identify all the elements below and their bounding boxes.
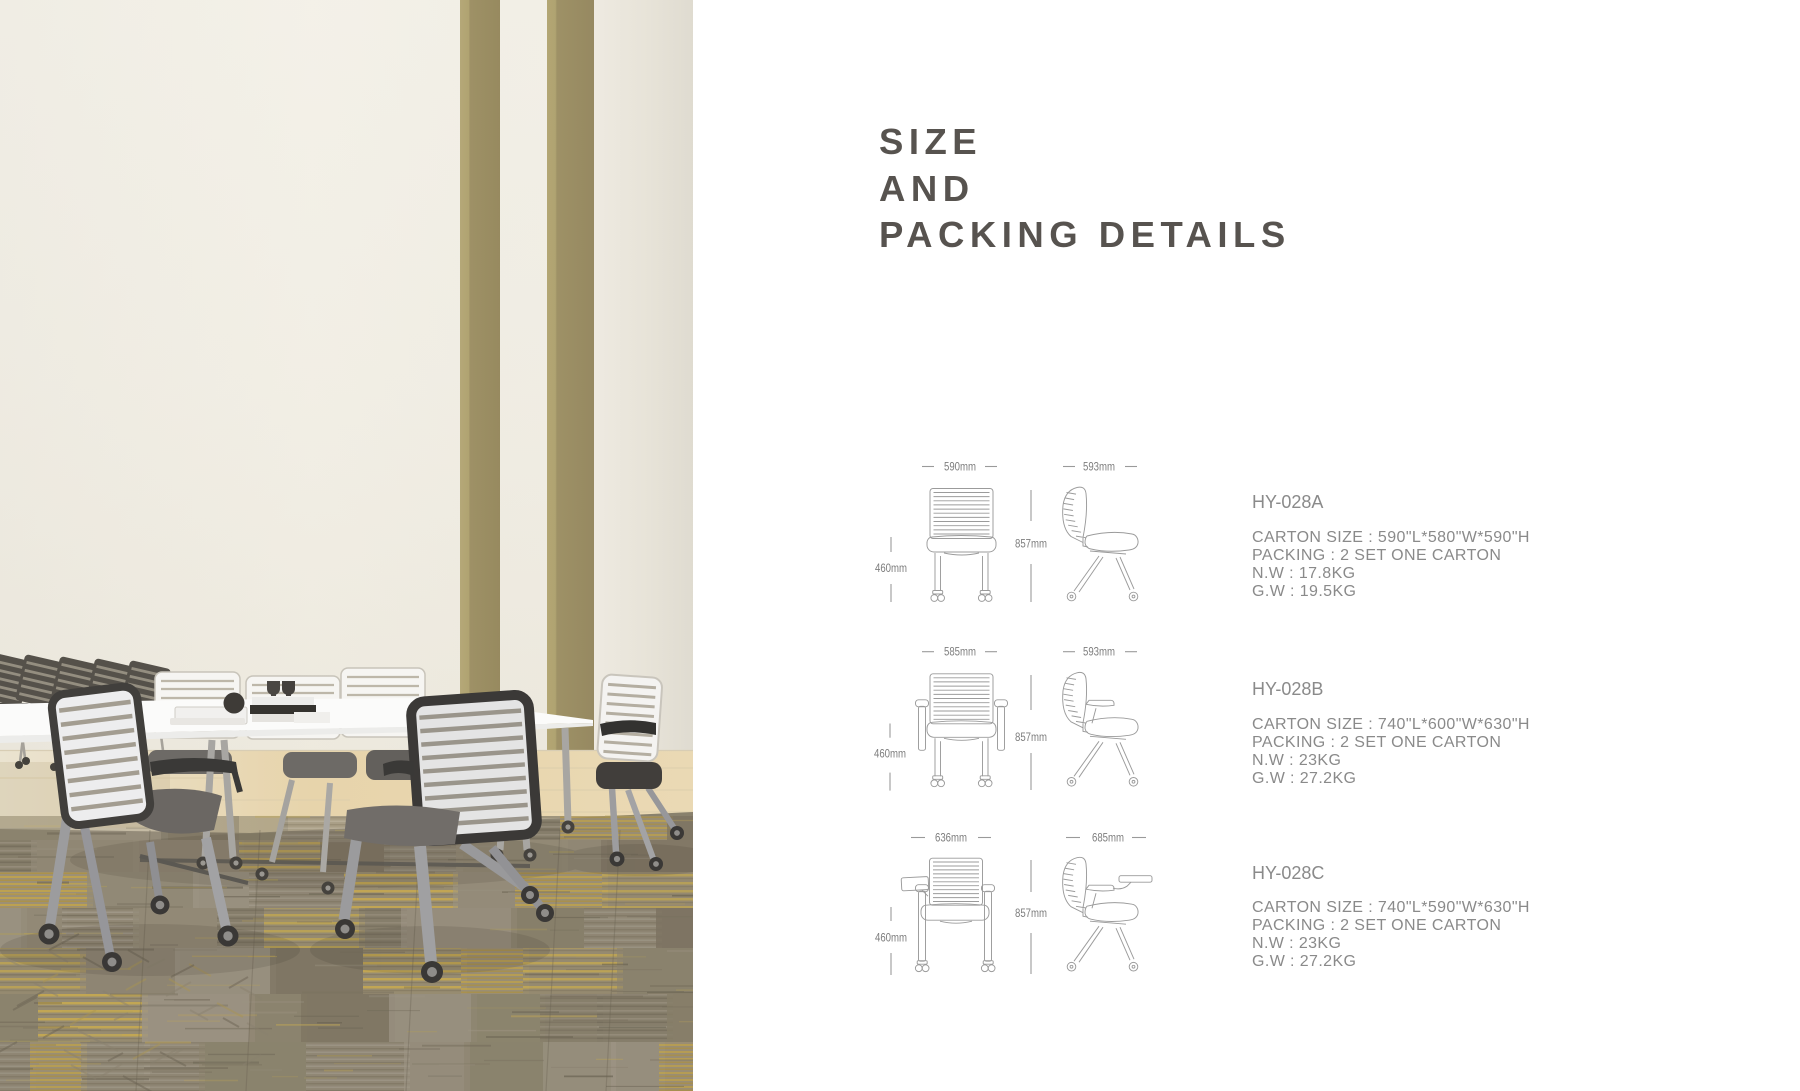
- svg-text:460mm: 460mm: [875, 931, 907, 945]
- svg-text:460mm: 460mm: [875, 561, 907, 575]
- svg-text:857mm: 857mm: [1015, 906, 1047, 920]
- svg-text:590mm: 590mm: [944, 460, 976, 474]
- svg-text:585mm: 585mm: [944, 645, 976, 659]
- svg-text:857mm: 857mm: [1015, 730, 1047, 744]
- svg-text:460mm: 460mm: [874, 747, 906, 761]
- svg-text:593mm: 593mm: [1083, 460, 1115, 474]
- svg-text:636mm: 636mm: [935, 831, 967, 845]
- svg-text:857mm: 857mm: [1015, 537, 1047, 551]
- svg-text:593mm: 593mm: [1083, 645, 1115, 659]
- svg-text:685mm: 685mm: [1092, 831, 1124, 845]
